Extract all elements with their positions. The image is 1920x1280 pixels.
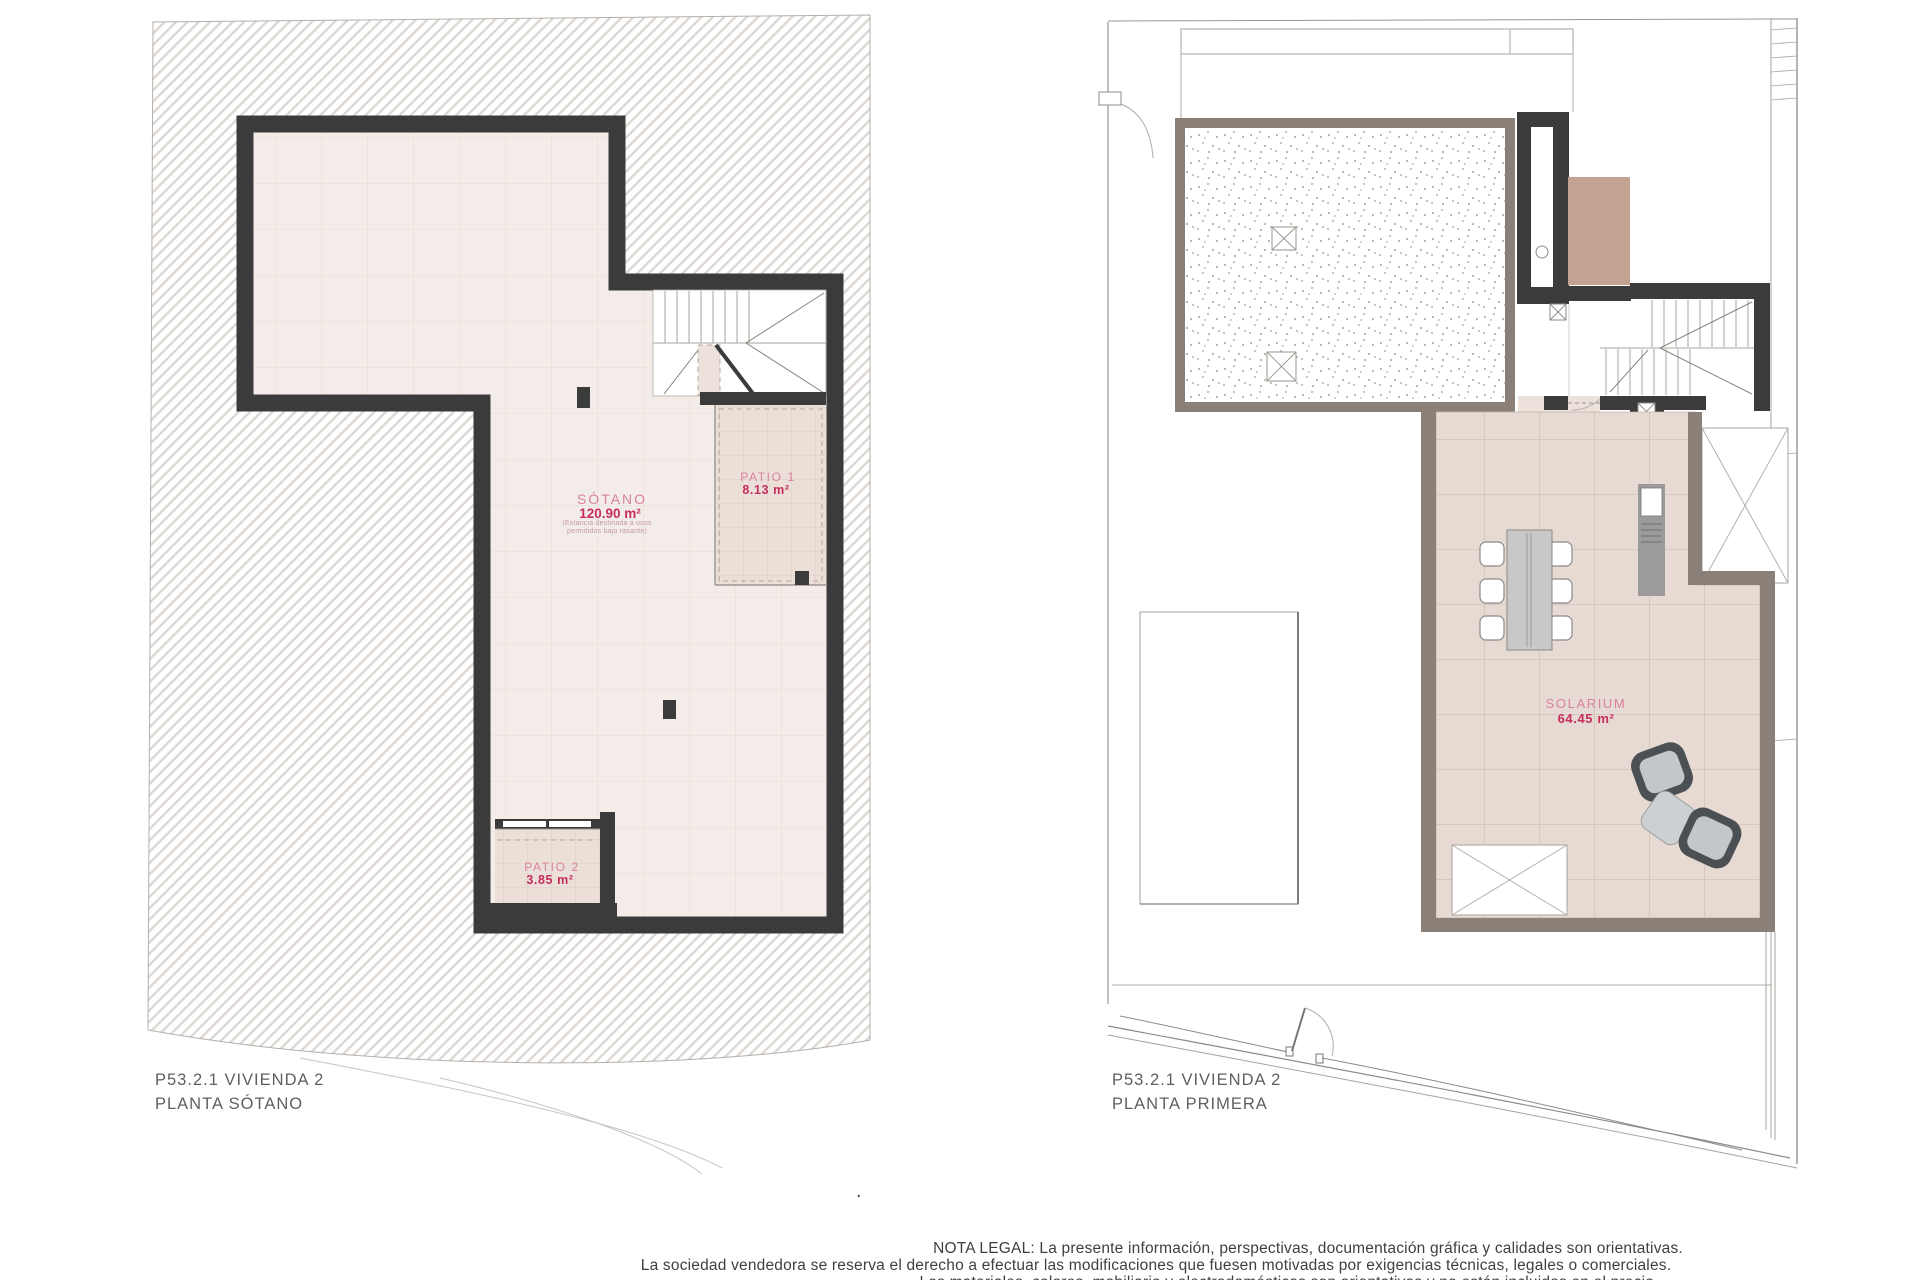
patio2-area-label: 3.85 m² [526,873,573,887]
patio1-area-label: 8.13 m² [742,483,789,497]
solarium-area-label: 64.45 m² [1558,711,1615,726]
floorplan-sheet: SÓTANO 120.90 m² (Estancia destinada a u… [0,0,1920,1280]
right-plan-drawing [1099,18,1797,1168]
legal-note-line3: Los materiales, colores, mobiliario y el… [919,1274,1658,1280]
sotano-area-label: 120.90 m² [579,506,641,521]
patio1-room-label: PATIO 1 [740,470,795,484]
left-plan-title-line1: P53.2.1 VIVIENDA 2 [155,1068,324,1092]
legal-note-line2: La sociedad vendedora se reserva el dere… [641,1257,1671,1275]
patio2-room-label: PATIO 2 [524,860,579,874]
sotano-note-line2: permitidos bajo rasante) [567,528,647,535]
separator-dot: . [856,1180,862,1203]
sotano-note-line1: (Estancia destinada a usos [562,520,651,527]
sotano-room-label: SÓTANO [577,491,647,507]
left-plan-title-line2: PLANTA SÓTANO [155,1092,324,1116]
legal-note-line1: NOTA LEGAL: La presente información, per… [933,1240,1683,1258]
left-plan-drawing [148,15,870,1174]
left-plan-title: P53.2.1 VIVIENDA 2 PLANTA SÓTANO [155,1068,324,1116]
right-plan-title-line1: P53.2.1 VIVIENDA 2 [1112,1068,1281,1092]
right-plan-title-line2: PLANTA PRIMERA [1112,1092,1281,1116]
right-plan-title: P53.2.1 VIVIENDA 2 PLANTA PRIMERA [1112,1068,1281,1116]
solarium-room-label: SOLARIUM [1546,696,1627,711]
